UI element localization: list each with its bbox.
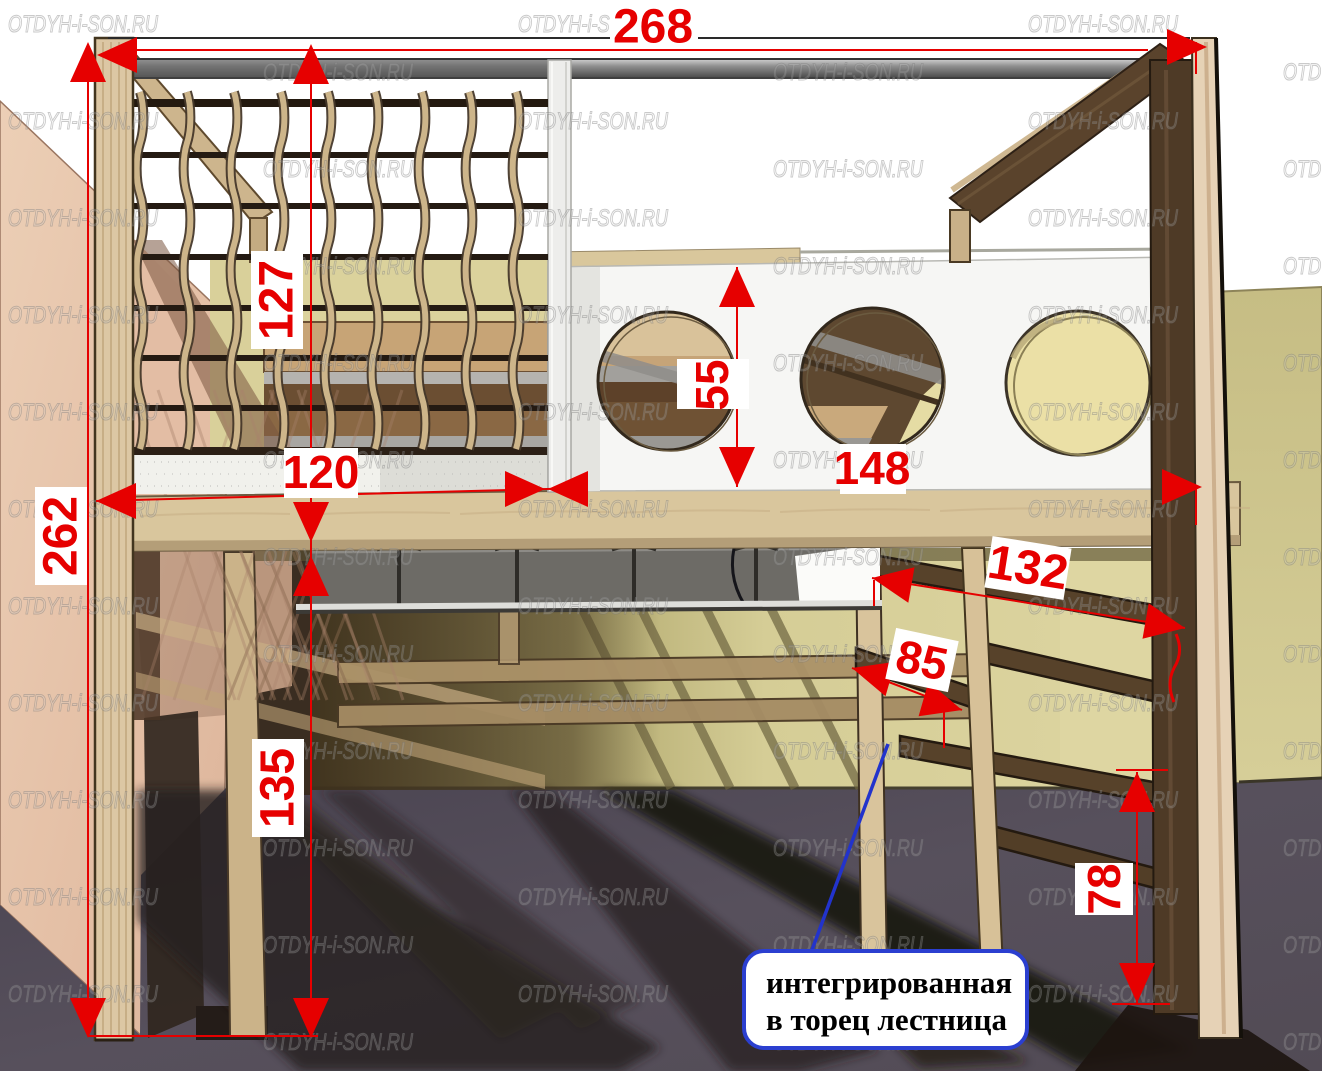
svg-text:OTDYH-i-SON.RU: OTDYH-i-SON.RU: [518, 593, 669, 620]
svg-text:OTDYH-i-SON.RU: OTDYH-i-SON.RU: [1028, 496, 1179, 523]
svg-text:OTDYH-i-SON.RU: OTDYH-i-SON.RU: [8, 884, 159, 911]
svg-text:OTDYH-i-SON.RU: OTDYH-i-SON.RU: [1283, 447, 1322, 474]
svg-text:OTDYH-i-SON.RU: OTDYH-i-SON.RU: [518, 302, 669, 329]
svg-text:OTDYH-i-SON.RU: OTDYH-i-SON.RU: [8, 787, 159, 814]
svg-text:OTDYH-i-SON.RU: OTDYH-i-SON.RU: [263, 59, 414, 86]
svg-text:OTDYH-i-SON.RU: OTDYH-i-SON.RU: [1283, 253, 1322, 280]
svg-text:OTDYH-i-SON.RU: OTDYH-i-SON.RU: [1283, 350, 1322, 377]
svg-text:OTDYH-i-SON.RU: OTDYH-i-SON.RU: [1028, 302, 1179, 329]
svg-text:OTDYH-i-SON.RU: OTDYH-i-SON.RU: [263, 156, 414, 183]
svg-text:120: 120: [283, 446, 360, 498]
svg-text:OTDYH-i-SON.RU: OTDYH-i-SON.RU: [1028, 205, 1179, 232]
svg-text:OTDYH-i-SON.RU: OTDYH-i-SON.RU: [263, 932, 414, 959]
svg-text:OTDYH-i-SON.RU: OTDYH-i-SON.RU: [8, 11, 159, 38]
svg-text:OTDYH-i-SON.RU: OTDYH-i-SON.RU: [773, 738, 924, 765]
svg-text:127: 127: [251, 260, 304, 340]
svg-text:OTDYH-i-SON.RU: OTDYH-i-SON.RU: [1283, 544, 1322, 571]
svg-text:в торец лестница: в торец лестница: [766, 1002, 1008, 1037]
svg-text:78: 78: [1078, 863, 1130, 914]
svg-text:OTDYH-i-SON.RU: OTDYH-i-SON.RU: [263, 1029, 414, 1056]
svg-text:интегрированная: интегрированная: [766, 965, 1012, 1000]
svg-text:135: 135: [252, 748, 305, 828]
svg-text:OTDYH-i-SON.RU: OTDYH-i-SON.RU: [1028, 690, 1179, 717]
svg-text:OTDYH-i-SON.RU: OTDYH-i-SON.RU: [518, 108, 669, 135]
svg-text:OTDYH-i-SON.RU: OTDYH-i-SON.RU: [1283, 932, 1322, 959]
svg-text:OTDYH-i-SON.RU: OTDYH-i-SON.RU: [773, 156, 924, 183]
svg-text:OTDYH-i-SON.RU: OTDYH-i-SON.RU: [773, 253, 924, 280]
svg-text:OTDYH-i-SON.RU: OTDYH-i-SON.RU: [518, 399, 669, 426]
svg-text:OTDYH-i-SON.RU: OTDYH-i-SON.RU: [8, 302, 159, 329]
svg-text:262: 262: [35, 496, 88, 576]
svg-text:OTDYH-i-SON.RU: OTDYH-i-SON.RU: [518, 205, 669, 232]
svg-text:OTDYH-i-SON.RU: OTDYH-i-SON.RU: [8, 205, 159, 232]
svg-text:OTDYH-i-SON.RU: OTDYH-i-SON.RU: [1283, 641, 1322, 668]
svg-text:OTDYH-i-SON.RU: OTDYH-i-SON.RU: [263, 350, 414, 377]
svg-text:OTDYH-i-SON.RU: OTDYH-i-SON.RU: [8, 108, 159, 135]
svg-text:OTDYH-i-SON.RU: OTDYH-i-SON.RU: [518, 690, 669, 717]
svg-text:85: 85: [892, 629, 953, 691]
svg-text:OTDYH-i-SON.RU: OTDYH-i-SON.RU: [1028, 108, 1179, 135]
svg-text:OTDYH-i-SON.RU: OTDYH-i-SON.RU: [773, 59, 924, 86]
svg-text:OTDYH-i-SON.RU: OTDYH-i-SON.RU: [1028, 11, 1179, 38]
svg-text:OTDYH-i-SON.RU: OTDYH-i-SON.RU: [1283, 156, 1322, 183]
svg-text:OTDYH-i-SON.RU: OTDYH-i-SON.RU: [1028, 787, 1179, 814]
svg-text:OTDYH-i-SON.RU: OTDYH-i-SON.RU: [518, 787, 669, 814]
svg-text:OTDYH-i-SON.RU: OTDYH-i-SON.RU: [518, 981, 669, 1008]
svg-text:OTDYH-i-SON.RU: OTDYH-i-SON.RU: [1283, 1029, 1322, 1056]
svg-text:OTDYH-i-SON.RU: OTDYH-i-SON.RU: [263, 641, 414, 668]
svg-text:OTDYH-i-SON.RU: OTDYH-i-SON.RU: [8, 690, 159, 717]
svg-text:OTDYH-i-SON.RU: OTDYH-i-SON.RU: [263, 544, 414, 571]
svg-text:OTDYH-i-SON.RU: OTDYH-i-SON.RU: [773, 544, 924, 571]
svg-text:268: 268: [613, 1, 693, 54]
svg-text:OTDYH-i-SON.RU: OTDYH-i-SON.RU: [773, 350, 924, 377]
svg-text:OTDYH-i-SON.RU: OTDYH-i-SON.RU: [1283, 835, 1322, 862]
svg-text:OTDYH-i-SON.RU: OTDYH-i-SON.RU: [518, 884, 669, 911]
svg-text:OTDYH-i-SON.RU: OTDYH-i-SON.RU: [1283, 59, 1322, 86]
svg-text:55: 55: [686, 359, 738, 410]
svg-text:OTDYH-i-SON.RU: OTDYH-i-SON.RU: [518, 496, 669, 523]
svg-text:OTDYH-i-SON.RU: OTDYH-i-SON.RU: [8, 399, 159, 426]
svg-text:OTDYH-i-SON.RU: OTDYH-i-SON.RU: [263, 835, 414, 862]
svg-text:148: 148: [834, 442, 911, 494]
svg-text:OTDYH-i-SON.RU: OTDYH-i-SON.RU: [1028, 399, 1179, 426]
svg-text:OTDYH-i-SON.RU: OTDYH-i-SON.RU: [8, 593, 159, 620]
svg-text:OTDYH-i-SON.RU: OTDYH-i-SON.RU: [1283, 738, 1322, 765]
